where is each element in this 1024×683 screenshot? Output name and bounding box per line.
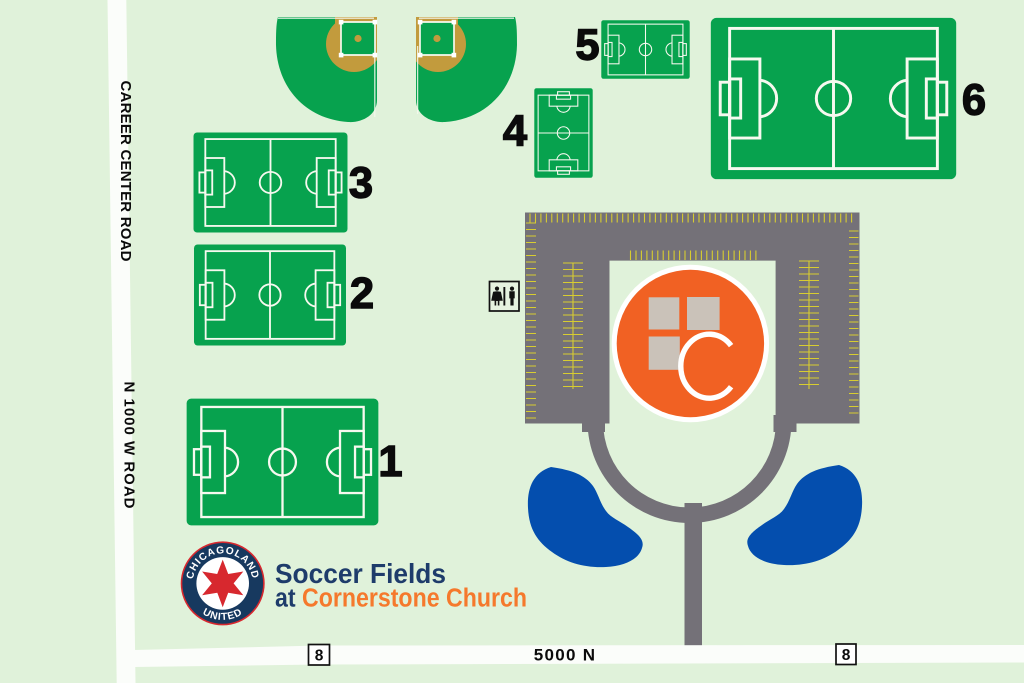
svg-text:CAREER CENTER ROAD: CAREER CENTER ROAD: [117, 81, 134, 262]
svg-text:N 1000 W ROAD: N 1000 W ROAD: [121, 382, 138, 509]
svg-text:3: 3: [349, 160, 373, 208]
svg-text:at Cornerstone Church: at Cornerstone Church: [275, 585, 527, 613]
svg-text:6: 6: [962, 77, 986, 125]
svg-text:5: 5: [575, 22, 599, 70]
svg-text:8: 8: [842, 647, 851, 664]
svg-text:1: 1: [378, 438, 402, 486]
svg-text:2: 2: [350, 270, 374, 318]
svg-text:8: 8: [315, 648, 324, 665]
svg-text:4: 4: [503, 108, 527, 156]
svg-text:5000 N: 5000 N: [534, 646, 597, 665]
